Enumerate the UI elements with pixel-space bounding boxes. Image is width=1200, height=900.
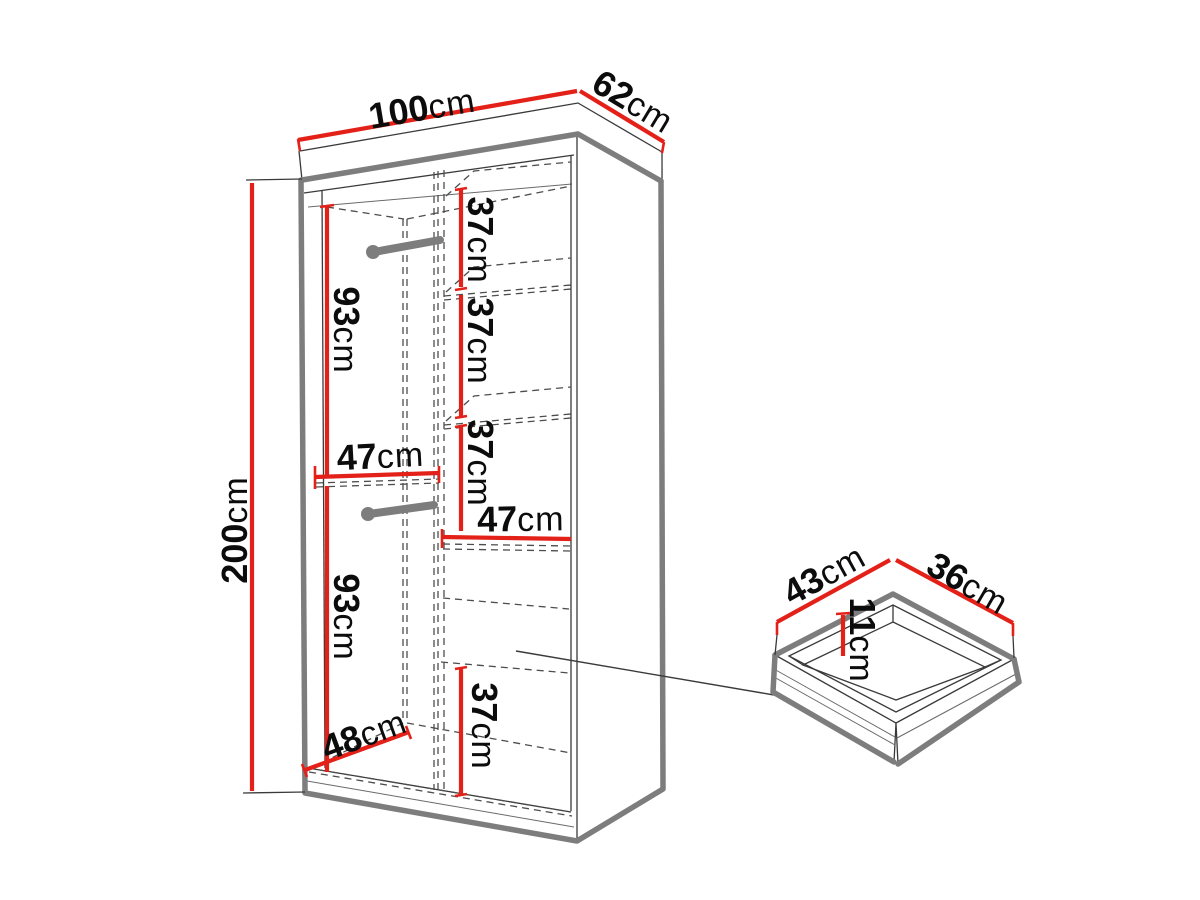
dim-value: 93: [326, 573, 367, 613]
dim-unit: cm: [326, 326, 364, 373]
dim-label-drawer-11: 11cm: [842, 597, 883, 682]
dim-value: 37: [460, 297, 501, 337]
dim-shelf-spacing-1: 37cm: [455, 188, 501, 290]
extension-line-top: [246, 179, 302, 180]
dim-unit: cm: [517, 500, 565, 539]
dim-label-height: 200cm: [214, 476, 255, 583]
dim-label-shelf-37-2: 37cm: [460, 297, 501, 384]
dim-label-shelf-37-3: 37cm: [460, 419, 501, 506]
dim-label-left-47: 47cm: [336, 433, 425, 479]
dim-end-tick: [662, 142, 664, 153]
dim-label-drawer-36: 36cm: [920, 544, 1016, 623]
dim-unit: cm: [376, 436, 425, 476]
dim-unit: cm: [460, 236, 498, 283]
dim-unit: cm: [460, 337, 498, 384]
wardrobe-right-edge: [661, 181, 663, 788]
dim-value: 37: [460, 196, 501, 236]
diagram-canvas: 100cm 62cm 200cm 93cm 47cm 93cm 48cm: [0, 0, 1200, 900]
furniture-dimension-diagram: 100cm 62cm 200cm 93cm 47cm 93cm 48cm: [0, 0, 1200, 900]
dim-label-upper-93: 93cm: [326, 286, 367, 373]
dim-unit: cm: [217, 476, 255, 523]
dim-label-lower-93: 93cm: [326, 573, 367, 660]
dim-value: 200: [214, 524, 255, 584]
drawer: 43cm 36cm 11cm: [773, 535, 1019, 764]
dim-value: 47: [477, 498, 518, 540]
dim-wardrobe-height: 200cm: [214, 179, 305, 793]
wardrobe-right-face: [577, 134, 663, 840]
dim-value: 11: [842, 597, 883, 635]
dim-drawer-inner-height: 11cm: [836, 597, 883, 682]
dim-unit: cm: [425, 82, 478, 127]
dim-value: 100: [366, 86, 432, 136]
dim-unit: cm: [842, 635, 880, 682]
dim-label-bottom-37: 37cm: [464, 682, 505, 769]
dim-value: 37: [464, 682, 505, 722]
dim-label-right-47: 47cm: [477, 497, 565, 540]
dim-label-shelf-37-1: 37cm: [460, 196, 501, 283]
dim-value: 37: [460, 419, 501, 459]
dim-value: 47: [336, 435, 378, 478]
dim-unit: cm: [326, 613, 364, 660]
extension-line: [1013, 636, 1014, 658]
dim-value: 93: [326, 286, 367, 326]
dim-unit: cm: [464, 722, 502, 769]
extension-line-bottom: [243, 792, 305, 793]
